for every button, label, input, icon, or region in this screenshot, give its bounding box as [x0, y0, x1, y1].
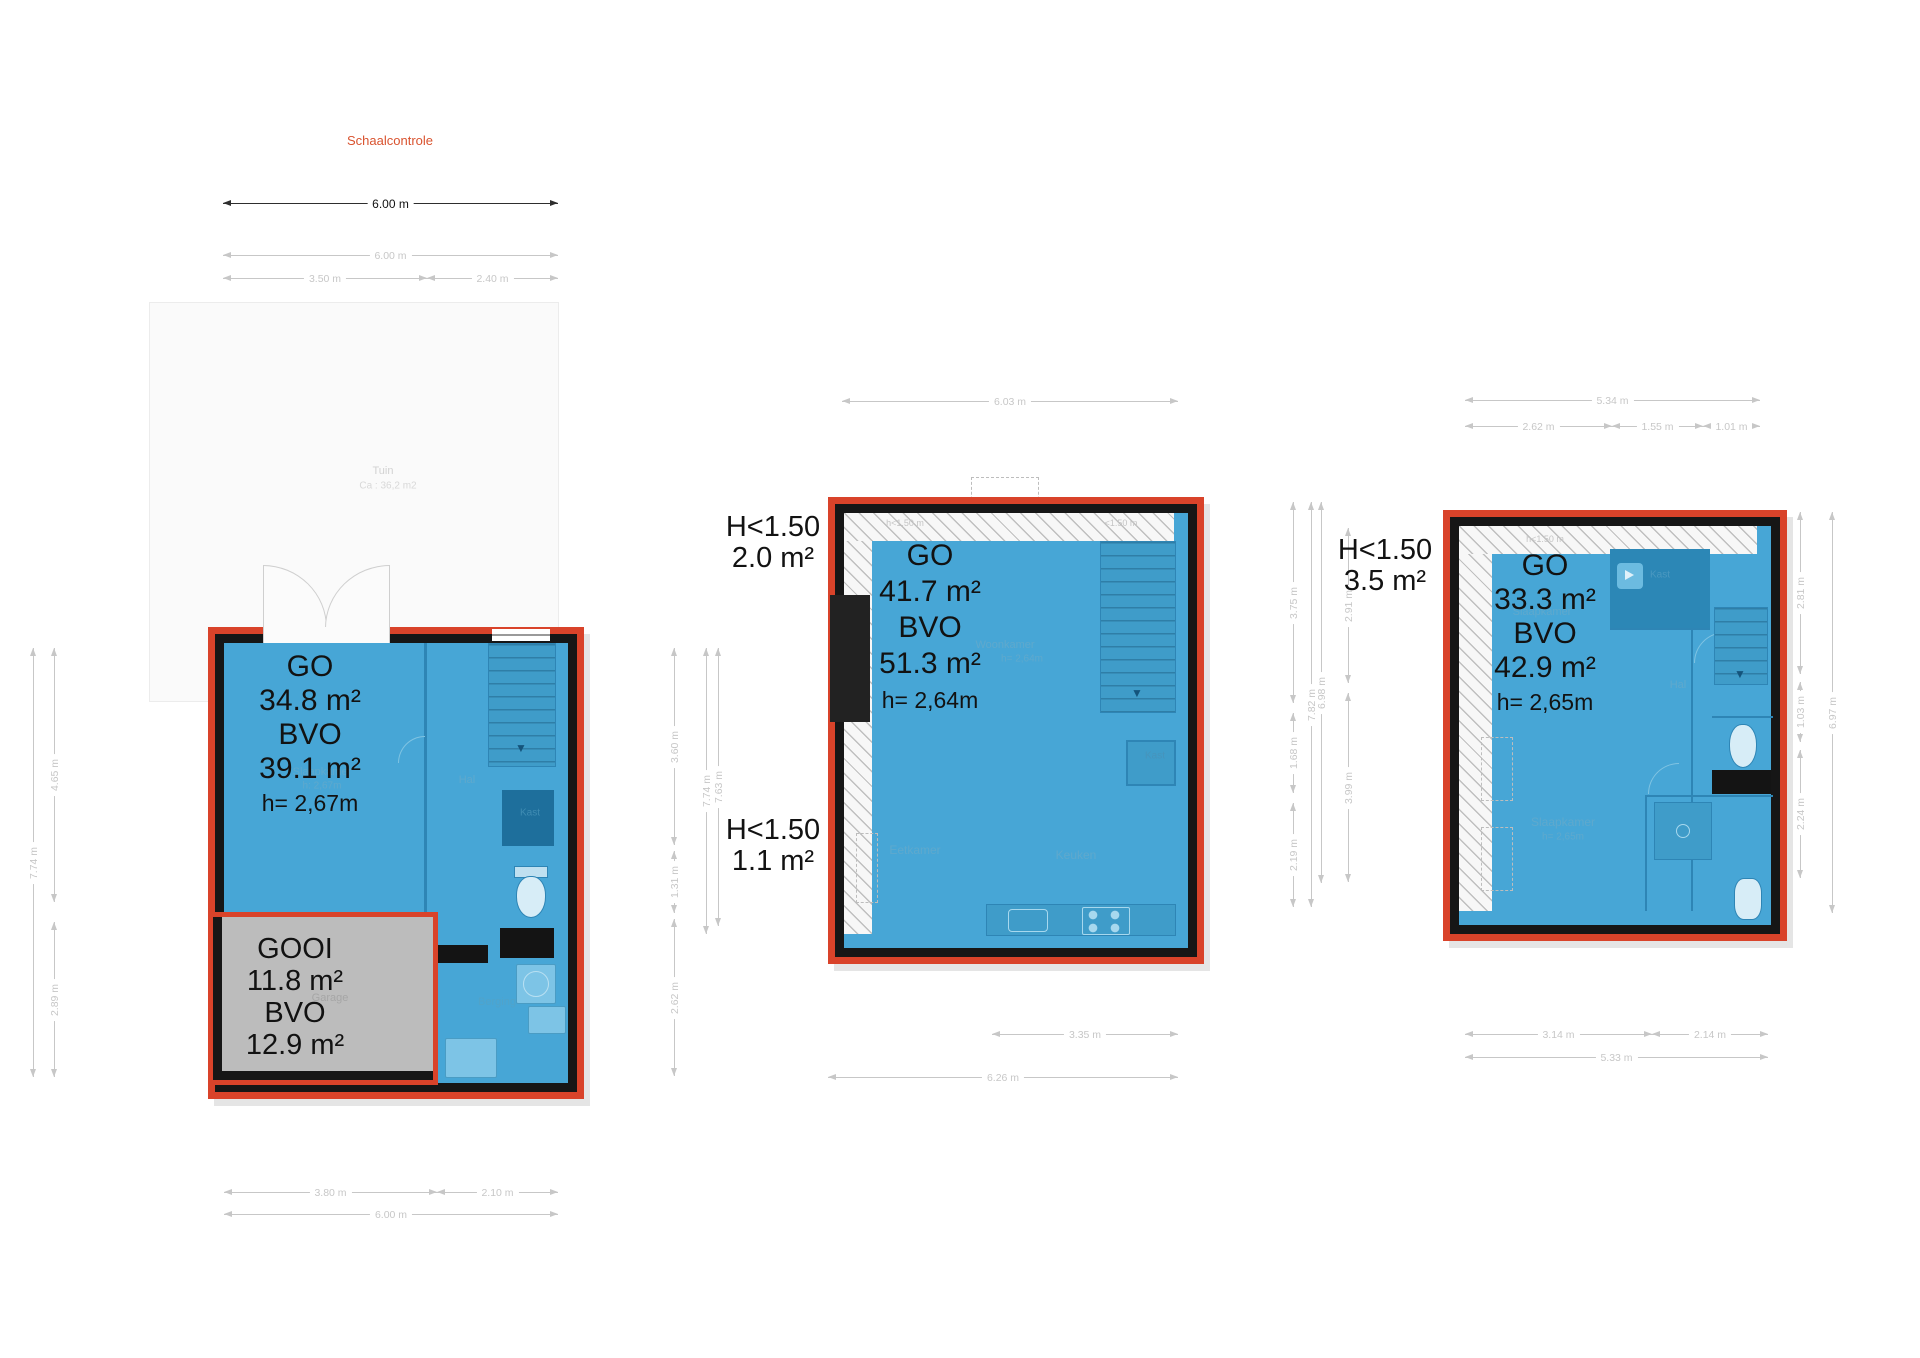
dimension-1.55: 1.55 m	[1612, 426, 1703, 427]
dimension-3.75: 3.75 m	[1293, 502, 1294, 703]
dimension-3.14: 3.14 m	[1465, 1034, 1652, 1035]
room-label-kast: Kast	[520, 808, 540, 819]
area-block-line: 2.0 m²	[726, 543, 820, 574]
shower-drain	[1676, 824, 1690, 838]
dimension-3.99: 3.99 m	[1348, 693, 1349, 882]
area-block-line: BVO	[1494, 617, 1596, 651]
dimension-5.33: 5.33 m	[1465, 1057, 1768, 1058]
dashed-marker	[1481, 827, 1513, 891]
room-label-keuken: Keuken	[1056, 848, 1097, 862]
dimension-label: 1.03 m	[1795, 691, 1807, 733]
dimension-label: 1.31 m	[669, 861, 681, 903]
dimension-2.10: 2.10 m	[437, 1192, 558, 1193]
room-label-ca-36-2-m2: Ca : 36,2 m2	[359, 481, 416, 492]
toilet-bowl	[516, 876, 546, 918]
dimension-2.62: 2.62 m	[1465, 426, 1612, 427]
area-block-line: h= 2,65m	[1494, 685, 1596, 719]
boiler-icon	[1617, 563, 1643, 589]
dimension-2.40: 2.40 m	[427, 278, 558, 279]
dimension-6.26: 6.26 m	[828, 1077, 1178, 1078]
wc-wall	[1712, 716, 1773, 718]
dimension-3.60: 3.60 m	[674, 648, 675, 845]
dimension-2.81: 2.81 m	[1800, 512, 1801, 674]
dimension-2.62: 2.62 m	[674, 919, 675, 1076]
bathroom-wall	[1645, 795, 1773, 797]
dimension-1.03: 1.03 m	[1800, 682, 1801, 742]
area-block-line: 12.9 m²	[246, 1029, 344, 1061]
window-top	[492, 629, 550, 641]
dashed-marker	[856, 833, 878, 903]
dimension-7.82: 7.82 m	[1311, 502, 1312, 907]
dimension-label: 2.40 m	[471, 273, 513, 285]
dimension-label: 2.62 m	[1517, 421, 1559, 433]
room-label--1-50-m: <1.50 m	[1105, 518, 1138, 528]
dimension-label: 6.00 m	[369, 250, 411, 262]
dimension-label: 3.80 m	[309, 1187, 351, 1199]
dimension-3.50: 3.50 m	[223, 278, 427, 279]
left-partition-wall	[424, 643, 427, 943]
dashed-marker	[1481, 737, 1513, 801]
door-opening	[263, 627, 390, 643]
dimension-label: 2.14 m	[1689, 1029, 1731, 1041]
dimension-label: 5.33 m	[1595, 1052, 1637, 1064]
utility-wall	[1610, 628, 1710, 630]
dimension-5.34: 5.34 m	[1465, 400, 1760, 401]
scale-control-title: Schaalcontrole	[347, 133, 433, 148]
dimension-label: 2.19 m	[1288, 834, 1300, 876]
dimension-label: 2.62 m	[669, 976, 681, 1018]
dimension-6.00: 6.00 m	[223, 203, 558, 204]
room-label-h-1-50-m: h<1.50 m	[886, 518, 924, 528]
area-block-line: 11.8 m²	[246, 965, 344, 997]
dimension-2.89: 2.89 m	[54, 922, 55, 1077]
floorplan-sheet: Schaalcontrole ▼ ▼	[0, 0, 1920, 1358]
dimension-3.80: 3.80 m	[224, 1192, 437, 1193]
area-block-line: h= 2,64m	[879, 682, 981, 718]
area-block-line: H<1.50	[726, 815, 820, 846]
dimension-6.98: 6.98 m	[1321, 502, 1322, 883]
area-block-line: GO	[259, 650, 361, 684]
area-block-line: BVO	[246, 997, 344, 1029]
kitchen-sink	[1008, 909, 1048, 932]
dimension-label: 6.00 m	[370, 1209, 412, 1221]
dimension-1.01: 1.01 m	[1703, 426, 1760, 427]
area-block: H<1.503.5 m²	[1338, 535, 1432, 597]
wall-chunk	[500, 928, 554, 958]
dimension-2.24: 2.24 m	[1800, 750, 1801, 878]
dimension-label: 2.81 m	[1795, 572, 1807, 614]
area-block-line: BVO	[259, 718, 361, 752]
dimension-1.68: 1.68 m	[1293, 713, 1294, 793]
area-block: GO34.8 m²BVO39.1 m²h= 2,67m	[259, 650, 361, 820]
dimension-6.00: 6.00 m	[223, 255, 558, 256]
dimension-2.19: 2.19 m	[1293, 803, 1294, 907]
area-block-line: GOOI	[246, 933, 344, 965]
dimension-label: 7.74 m	[28, 841, 40, 883]
dimension-label: 1.68 m	[1288, 732, 1300, 774]
room-label-berging: Berging	[478, 996, 516, 1008]
kitchen-stove	[1082, 907, 1130, 935]
area-block: GO41.7 m²BVO51.3 m²h= 2,64m	[879, 538, 981, 718]
dimension-label: 6.03 m	[989, 396, 1031, 408]
dimension-4.65: 4.65 m	[54, 648, 55, 902]
room-label-kast: Kast	[1145, 751, 1165, 762]
dimension-label: 1.01 m	[1710, 421, 1752, 433]
room-label-h-2-65m: h= 2,65m	[1542, 832, 1584, 843]
room-label-tuin: Tuin	[373, 465, 394, 477]
area-block-line: H<1.50	[1338, 535, 1432, 566]
dimension-7.74: 7.74 m	[33, 648, 34, 1077]
room-label-kast: Kast	[1650, 570, 1670, 581]
room-label-h-1-50-m: h<1.50 m	[1526, 534, 1564, 544]
dimension-label: 3.50 m	[304, 273, 346, 285]
dimension-label: 7.63 m	[713, 766, 725, 808]
room-label-slaapkamer: Slaapkamer	[1531, 815, 1595, 829]
area-block: H<1.502.0 m²	[726, 512, 820, 574]
dimension-1.31: 1.31 m	[674, 851, 675, 913]
area-block-line: GO	[1494, 549, 1596, 583]
area-block-line: BVO	[879, 610, 981, 646]
dimension-label: 2.24 m	[1795, 793, 1807, 835]
room-label-eetkamer: Eetkamer	[889, 843, 940, 857]
room-label-hal: Hal	[459, 774, 476, 786]
room-label-hal: Hal	[1670, 679, 1687, 691]
area-block-line: H<1.50	[726, 512, 820, 543]
middle-closet	[1126, 740, 1176, 786]
washer	[516, 964, 556, 1004]
dimension-7.63: 7.63 m	[718, 648, 719, 926]
area-block-line: 1.1 m²	[726, 846, 820, 877]
dimension-label: 4.65 m	[49, 754, 61, 796]
dimension-label: 3.60 m	[669, 725, 681, 767]
area-block: H<1.501.1 m²	[726, 815, 820, 877]
dimension-label: 6.98 m	[1316, 671, 1328, 713]
dimension-label: 2.89 m	[49, 978, 61, 1020]
dimension-6.00: 6.00 m	[224, 1214, 558, 1215]
dimension-label: 1.55 m	[1636, 421, 1678, 433]
area-block-line: 41.7 m²	[879, 574, 981, 610]
dimension-label: 3.75 m	[1288, 581, 1300, 623]
hall-wall	[1691, 630, 1693, 911]
dimension-label: 6.26 m	[982, 1072, 1024, 1084]
chimney-block	[830, 595, 870, 722]
dimension-label: 6.00 m	[367, 197, 414, 211]
bathroom-wall	[1645, 797, 1647, 911]
storage-unit	[445, 1038, 497, 1078]
dimension-label: 6.97 m	[1827, 691, 1839, 733]
dimension-2.14: 2.14 m	[1652, 1034, 1768, 1035]
area-block-line: h= 2,67m	[259, 786, 361, 820]
area-block-line: 33.3 m²	[1494, 583, 1596, 617]
area-block-line: 34.8 m²	[259, 684, 361, 718]
stairs-down-arrow: ▼	[1734, 667, 1746, 681]
dimension-label: 5.34 m	[1591, 395, 1633, 407]
room-label-h-2-64m: h= 2,64m	[1001, 654, 1043, 665]
area-block-line: GO	[879, 538, 981, 574]
washbasin	[1734, 878, 1762, 920]
area-block-line: 42.9 m²	[1494, 651, 1596, 685]
stairs-down-arrow: ▼	[515, 741, 527, 755]
storage-cabinet	[528, 1006, 566, 1034]
dimension-label: 3.14 m	[1537, 1029, 1579, 1041]
room-label-woonkamer: Woonkamer	[975, 639, 1034, 651]
utility-room	[1610, 549, 1710, 629]
wall-chunk	[1712, 770, 1771, 794]
dimension-label: 7.74 m	[701, 770, 713, 812]
area-block: GOOI11.8 m²BVO12.9 m²	[246, 933, 344, 1061]
area-block-line: 3.5 m²	[1338, 566, 1432, 597]
dimension-label: 3.35 m	[1064, 1029, 1106, 1041]
stairs-down-arrow: ▼	[1131, 686, 1143, 700]
dimension-6.97: 6.97 m	[1832, 512, 1833, 913]
dimension-3.35: 3.35 m	[992, 1034, 1178, 1035]
dimension-7.74: 7.74 m	[706, 648, 707, 934]
dimension-6.03: 6.03 m	[842, 401, 1178, 402]
area-block: GO33.3 m²BVO42.9 m²h= 2,65m	[1494, 549, 1596, 719]
dimension-label: 3.99 m	[1343, 766, 1355, 808]
area-block-line: 51.3 m²	[879, 646, 981, 682]
dimension-label: 2.10 m	[476, 1187, 518, 1199]
washer-drum	[523, 971, 549, 997]
toilet-bowl	[1729, 724, 1757, 768]
area-block-line: 39.1 m²	[259, 752, 361, 786]
